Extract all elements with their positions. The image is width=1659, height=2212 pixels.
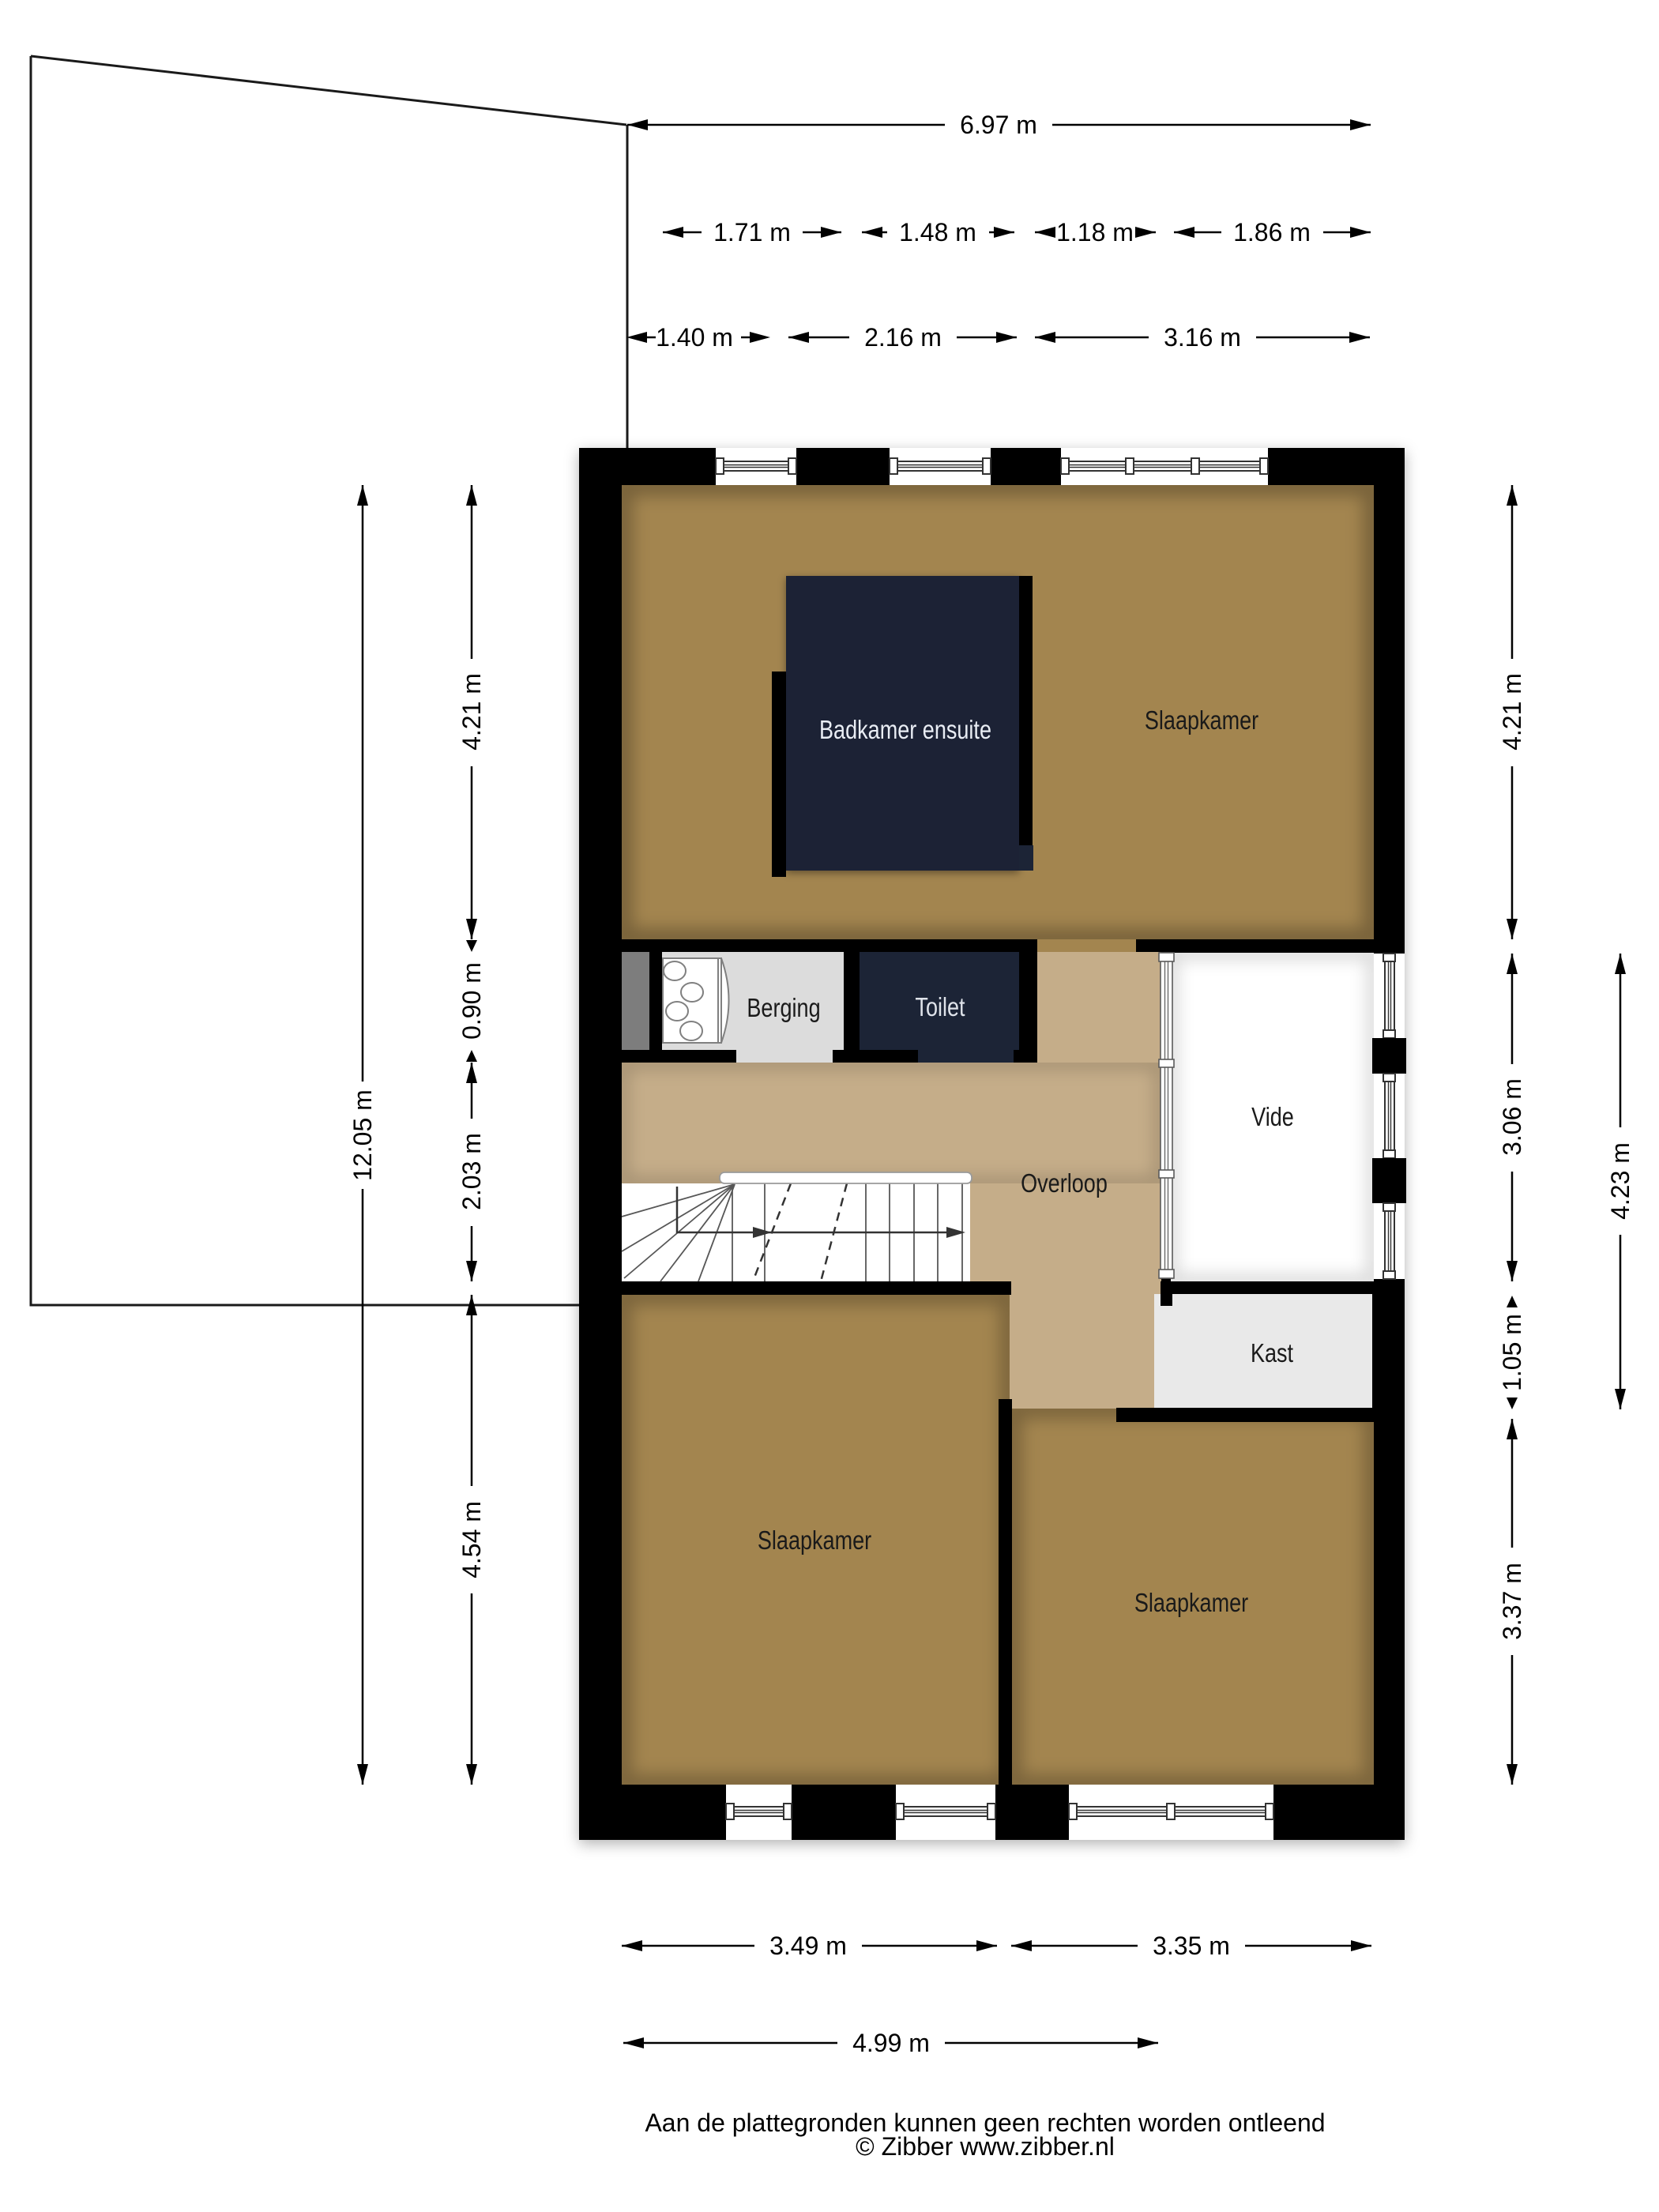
- svg-text:Kast: Kast: [1251, 1340, 1294, 1368]
- svg-text:Slaapkamer: Slaapkamer: [1134, 1589, 1248, 1618]
- svg-text:1.05 m: 1.05 m: [1498, 1314, 1526, 1391]
- svg-text:© Zibber www.zibber.nl: © Zibber www.zibber.nl: [856, 2132, 1115, 2161]
- svg-text:Slaapkamer: Slaapkamer: [1145, 707, 1258, 735]
- svg-text:2.03 m: 2.03 m: [457, 1133, 486, 1210]
- svg-text:4.99 m: 4.99 m: [852, 2029, 930, 2057]
- svg-text:0.90 m: 0.90 m: [457, 962, 486, 1040]
- svg-text:4.23 m: 4.23 m: [1606, 1142, 1635, 1220]
- svg-text:Toilet: Toilet: [915, 994, 965, 1022]
- svg-text:3.06 m: 3.06 m: [1498, 1078, 1526, 1156]
- svg-text:Vide: Vide: [1251, 1104, 1294, 1132]
- svg-text:4.54 m: 4.54 m: [457, 1501, 486, 1578]
- svg-text:1.71 m: 1.71 m: [713, 218, 791, 246]
- svg-text:4.21 m: 4.21 m: [457, 673, 486, 750]
- svg-text:Slaapkamer: Slaapkamer: [758, 1527, 871, 1556]
- svg-text:3.37 m: 3.37 m: [1498, 1563, 1526, 1640]
- svg-text:3.16 m: 3.16 m: [1164, 323, 1241, 352]
- svg-text:1.86 m: 1.86 m: [1233, 218, 1311, 246]
- svg-text:2.16 m: 2.16 m: [864, 323, 942, 352]
- svg-text:1.18 m: 1.18 m: [1056, 218, 1134, 246]
- svg-text:3.35 m: 3.35 m: [1153, 1932, 1230, 1960]
- svg-text:6.97 m: 6.97 m: [960, 111, 1037, 139]
- svg-text:Berging: Berging: [747, 995, 820, 1023]
- svg-text:12.05 m: 12.05 m: [348, 1089, 377, 1181]
- svg-text:3.49 m: 3.49 m: [769, 1932, 847, 1960]
- svg-text:Overloop: Overloop: [1021, 1170, 1108, 1198]
- svg-text:1.48 m: 1.48 m: [899, 218, 976, 246]
- svg-text:Badkamer ensuite: Badkamer ensuite: [819, 717, 991, 745]
- svg-text:1.40 m: 1.40 m: [656, 323, 733, 352]
- svg-text:4.21 m: 4.21 m: [1498, 673, 1526, 750]
